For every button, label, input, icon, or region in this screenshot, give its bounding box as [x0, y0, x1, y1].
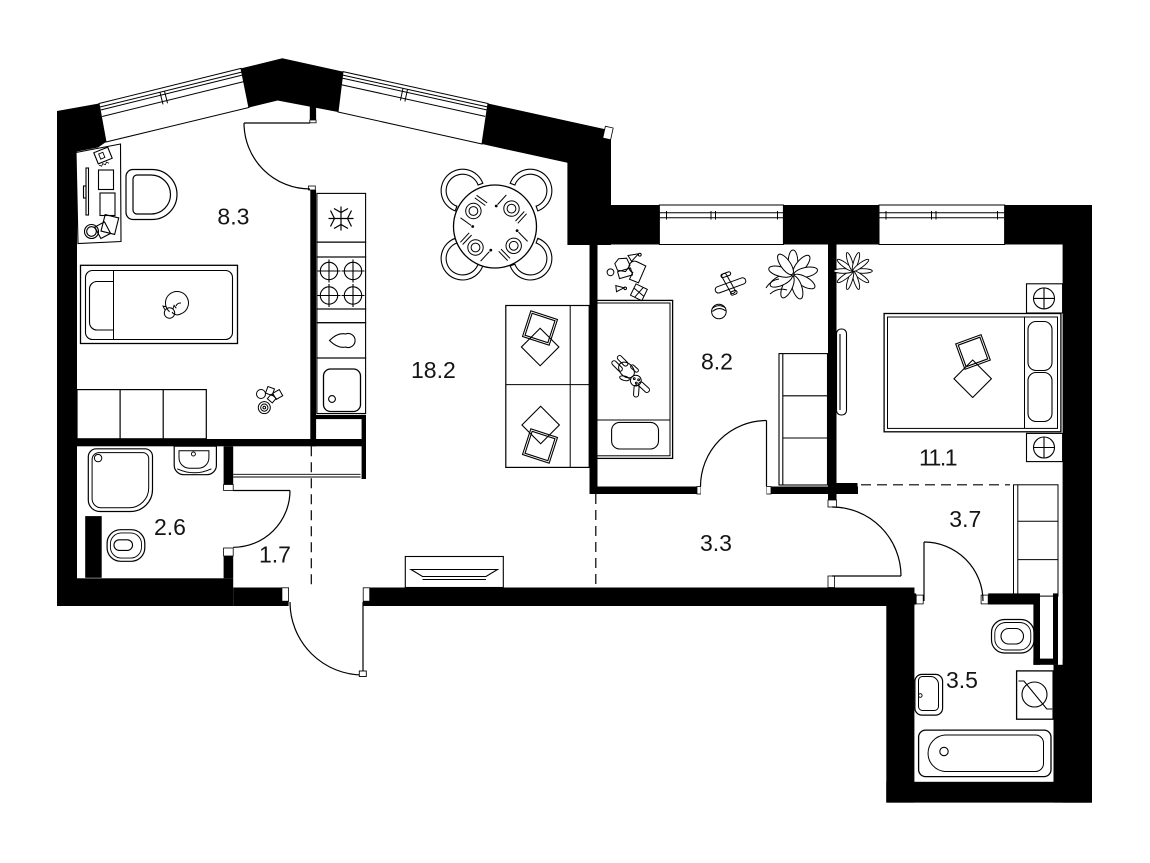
svg-text:11.1: 11.1 — [919, 444, 957, 470]
svg-text:3.7: 3.7 — [949, 506, 981, 532]
svg-text:1.7: 1.7 — [259, 541, 291, 567]
svg-text:2.6: 2.6 — [154, 514, 186, 540]
svg-text:3.3: 3.3 — [700, 530, 732, 556]
svg-text:3.5: 3.5 — [946, 667, 978, 693]
svg-text:8.3: 8.3 — [217, 204, 249, 230]
svg-text:8.2: 8.2 — [701, 349, 733, 375]
svg-text:18.2: 18.2 — [411, 357, 456, 383]
